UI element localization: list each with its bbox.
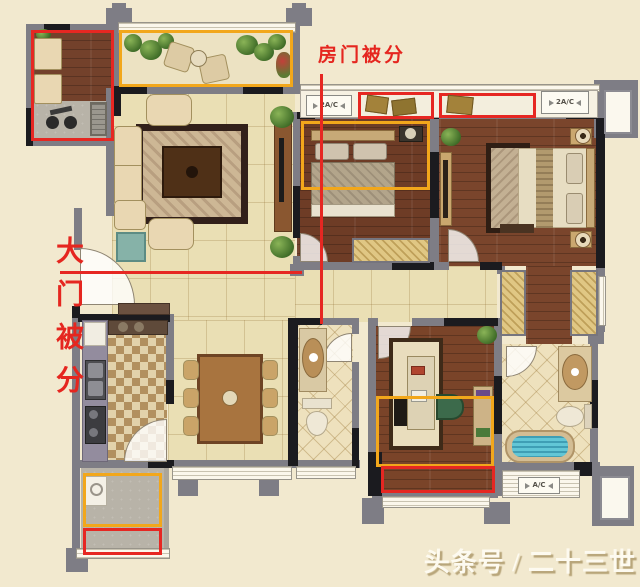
bay-pillow: [446, 95, 474, 116]
dining-chair: [183, 416, 199, 436]
console-table: [118, 303, 170, 315]
wall-segment-black: [430, 152, 439, 218]
sink-basin: [88, 363, 103, 378]
bedside-lamp: [575, 128, 591, 144]
wall-segment-black: [288, 318, 322, 325]
pillar-stub: [362, 498, 384, 524]
wall-segment: [72, 468, 80, 552]
counter-bowl: [134, 322, 144, 332]
master-bed-pillow: [566, 153, 583, 184]
wall-segment-black: [494, 376, 502, 434]
wall-segment: [290, 264, 304, 276]
corridor-floor: [295, 266, 497, 322]
ac-bracket-icon: [340, 103, 345, 109]
sofa-left: [114, 126, 142, 206]
ac-bracket-icon: [313, 103, 318, 109]
toilet-tank: [584, 404, 592, 429]
plant: [270, 106, 294, 128]
wall-segment-black: [121, 86, 147, 94]
wall-segment: [164, 468, 169, 550]
plant: [270, 236, 294, 258]
toilet-tank: [302, 398, 332, 409]
wall-segment: [439, 262, 449, 270]
basin-drain: [309, 353, 318, 362]
armchair-top: [146, 94, 192, 126]
coffee-table-decor: [186, 166, 198, 178]
wall-segment-black: [480, 262, 502, 270]
bedside-lamp: [575, 232, 591, 248]
master-bed-headboard: [586, 148, 595, 228]
chimney-pillar: [292, 3, 306, 9]
master-bed-runner: [536, 148, 553, 228]
highlight-balcony-yellow: [119, 30, 293, 87]
highlight-study-red: [381, 466, 495, 493]
basin-drain: [571, 368, 579, 376]
watermark-text: 头条号 / 二十三世子: [404, 542, 636, 587]
stove-burner: [89, 428, 98, 437]
desk-book: [411, 366, 425, 375]
bay-pillow: [365, 95, 389, 115]
wall-segment-black: [166, 380, 174, 404]
armchair-bottom: [148, 218, 194, 250]
tv-screen: [279, 138, 284, 202]
ac-bracket-icon: [576, 100, 581, 106]
bed-bench: [500, 224, 534, 233]
ac-label-bedroom2: 2A/C: [306, 95, 352, 116]
dining-chair: [262, 360, 278, 380]
wall-segment-black: [293, 186, 300, 238]
master-dresser-tv: [443, 160, 448, 218]
dining-chair: [183, 388, 199, 408]
stove-burner: [89, 410, 98, 419]
highlight-gym-room-red: [31, 30, 114, 141]
wall-segment: [320, 318, 358, 325]
pillar-window: [604, 90, 632, 134]
master-bed-pillow: [566, 193, 583, 224]
dining-chair: [262, 416, 278, 436]
dressing-closet: [570, 270, 598, 336]
study-window: [382, 496, 490, 508]
annotation-line-vertical: [320, 74, 323, 324]
counter-bowl: [118, 322, 128, 332]
ac-bracket-icon: [525, 483, 530, 489]
dining-chair: [183, 360, 199, 380]
sofa-corner-seat: [114, 200, 146, 230]
ac-bracket-icon: [548, 483, 553, 489]
wall-segment: [368, 318, 376, 458]
toilet-bowl: [556, 406, 584, 427]
annotation-top-label: 房门被分: [318, 40, 406, 67]
side-table-teal: [116, 232, 146, 262]
wall-segment-black: [596, 118, 605, 268]
ac-label-bottom: A/C: [518, 477, 560, 494]
ac-bracket-icon: [549, 100, 554, 106]
bay-pillow: [391, 98, 417, 117]
chimney-pillar: [112, 3, 126, 9]
dressing-walkway-floor: [526, 266, 572, 344]
dining-chair: [262, 388, 278, 408]
wall-segment-black: [352, 428, 359, 468]
ac-label-text: 2A/C: [556, 99, 574, 106]
pillar-window: [600, 476, 630, 520]
highlight-kitchen-balcony-red: [83, 528, 162, 555]
dining-centerpiece: [222, 390, 238, 406]
wall-segment: [293, 112, 300, 186]
highlight-study-yellow: [376, 396, 494, 467]
bed2-folded-edge: [311, 204, 395, 217]
dressing-closet: [500, 270, 526, 336]
dining-window: [172, 466, 292, 480]
floor-plan: 2A/C 2A/C A/C: [0, 0, 640, 587]
wall-segment-black: [113, 86, 121, 116]
side-window: [598, 276, 606, 326]
wall-segment-black: [392, 262, 434, 270]
wall-segment-black: [288, 318, 298, 466]
annotation-line-horizontal: [60, 271, 302, 274]
wall-segment-black: [243, 86, 283, 94]
bathroom-window: [296, 466, 356, 479]
wall-segment-black: [444, 318, 498, 326]
plant: [441, 128, 461, 146]
ac-label-text: A/C: [532, 482, 545, 489]
bathtub-water: [512, 436, 568, 457]
wall-segment: [292, 24, 300, 88]
annotation-left-label: 大门被分: [48, 236, 88, 411]
bedroom2-wardrobe: [352, 238, 430, 263]
plant: [477, 326, 497, 344]
highlight-kitchen-balcony-yellow: [83, 473, 162, 527]
sink-basin: [88, 381, 103, 396]
ac-label-master: 2A/C: [541, 91, 589, 114]
wall-segment: [412, 318, 444, 326]
